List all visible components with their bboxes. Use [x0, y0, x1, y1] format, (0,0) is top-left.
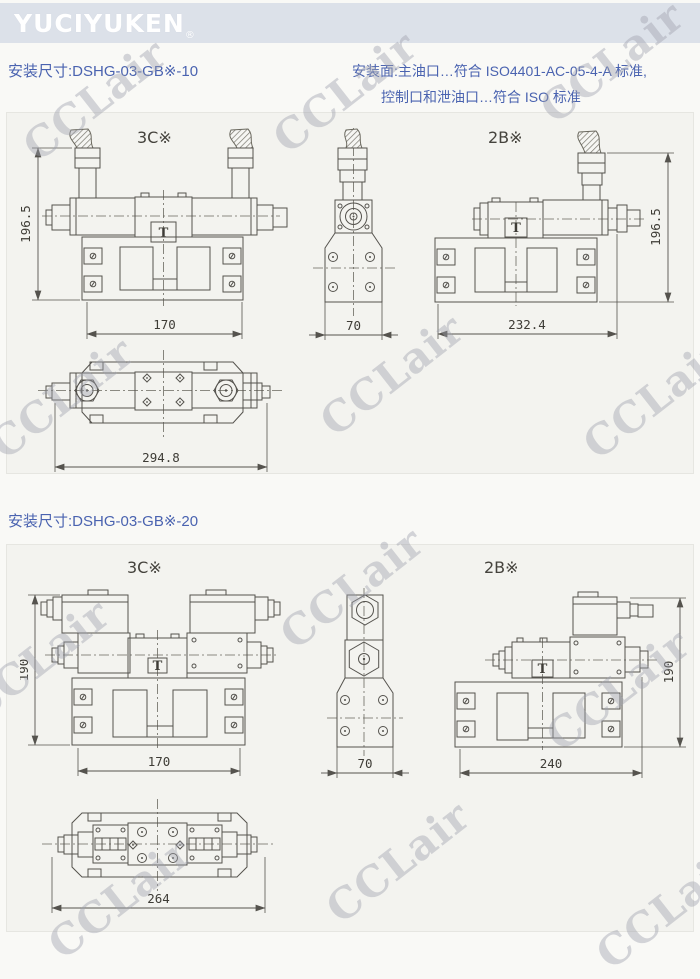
header-band: YUCIYUKEN® — [0, 3, 700, 43]
terminal-box-left — [62, 595, 128, 633]
subplate — [455, 682, 622, 747]
section2-label-2b: 2B※ — [484, 558, 519, 577]
dim-height-2b: 196.5 — [648, 208, 663, 246]
terminal-box — [573, 597, 617, 635]
drain-symbol: T — [538, 662, 548, 677]
valve-drawing — [38, 350, 282, 440]
valve-drawing — [42, 799, 275, 891]
drain-symbol: T — [511, 221, 521, 236]
brand-logo: YUCIYUKEN® — [14, 9, 196, 41]
section2-title: 安装尺寸:DSHG-03-GB※-20 — [8, 510, 198, 531]
valve-drawing: T — [41, 590, 280, 750]
dimension-width: 170 — [87, 302, 242, 339]
figure-2b-front-view-10: T 196.5 232.4 — [430, 126, 680, 342]
valve-drawing — [313, 128, 395, 316]
dim-height-3c: 196.5 — [18, 205, 33, 243]
drain-symbol: T — [153, 659, 163, 674]
figure-3c-front-view-10: T 196.5 170 — [18, 126, 296, 342]
section1-label-3c: 3C※ — [137, 128, 172, 147]
dimension-width: 70 — [321, 747, 409, 778]
valve-body-side — [337, 678, 393, 747]
solenoid-left — [78, 633, 130, 673]
brand-logo-text: YUCIYUKEN — [14, 9, 185, 38]
cable — [578, 131, 601, 153]
figure-plan-view-10: 294.8 — [30, 348, 300, 478]
valve-drawing: T — [455, 592, 660, 750]
dim-side-width: 70 — [346, 318, 361, 333]
valve-drawing: T — [435, 131, 645, 306]
solenoid-left — [70, 198, 135, 235]
dimension-width: 70 — [309, 302, 398, 340]
figure-plan-view-20: 264 — [30, 795, 300, 930]
dimension-height: 196.5 — [599, 153, 674, 302]
figure-side-view-10: 70 — [305, 126, 417, 342]
figure-side-view-20: 70 — [310, 560, 425, 786]
dim-width-2b: 232.4 — [508, 317, 546, 332]
dim-plan-length: 264 — [147, 891, 170, 906]
dim-height-2b: 190 — [661, 661, 676, 684]
dim-width-3c: 170 — [148, 754, 171, 769]
dimension-width: 170 — [78, 748, 240, 776]
cable-left — [70, 129, 93, 148]
dimension-height: 196.5 — [18, 148, 80, 300]
valve-drawing: T — [42, 129, 287, 306]
subplate — [72, 678, 245, 745]
figure-2b-front-view-20: T 190 240 — [445, 560, 695, 786]
section2-label-3c: 3C※ — [127, 558, 162, 577]
dimension-length: 294.8 — [55, 403, 267, 472]
mounting-note-line1: 安装面:主油口…符合 ISO4401-AC-05-4-A 标准, — [352, 61, 647, 81]
subplate — [82, 237, 243, 300]
cable-right — [230, 129, 253, 148]
mounting-note-line2: 控制口和泄油口…符合 ISO 标准 — [381, 87, 581, 107]
cable — [345, 129, 362, 148]
dim-plan-length: 294.8 — [142, 450, 180, 465]
solenoid — [543, 200, 608, 235]
subplate-outline — [82, 362, 243, 423]
valve-drawing — [327, 588, 403, 756]
section1-title: 安装尺寸:DSHG-03-GB※-10 — [8, 60, 198, 81]
dim-side-width: 70 — [357, 756, 372, 771]
figure-3c-front-view-20: T 190 170 — [20, 560, 305, 786]
dim-height-3c: 190 — [20, 659, 31, 682]
registered-mark: ® — [185, 30, 196, 41]
section1-label-2b: 2B※ — [488, 128, 523, 147]
dim-width-3c: 170 — [153, 317, 176, 332]
hex-gland — [352, 595, 378, 625]
datasheet-page: { "header": { "logo_text": "YUCIYUKEN", … — [0, 0, 700, 936]
solenoid-right — [192, 198, 257, 235]
dim-width-2b: 240 — [540, 756, 563, 771]
drain-symbol: T — [159, 226, 169, 241]
terminal-box-right — [190, 595, 255, 633]
